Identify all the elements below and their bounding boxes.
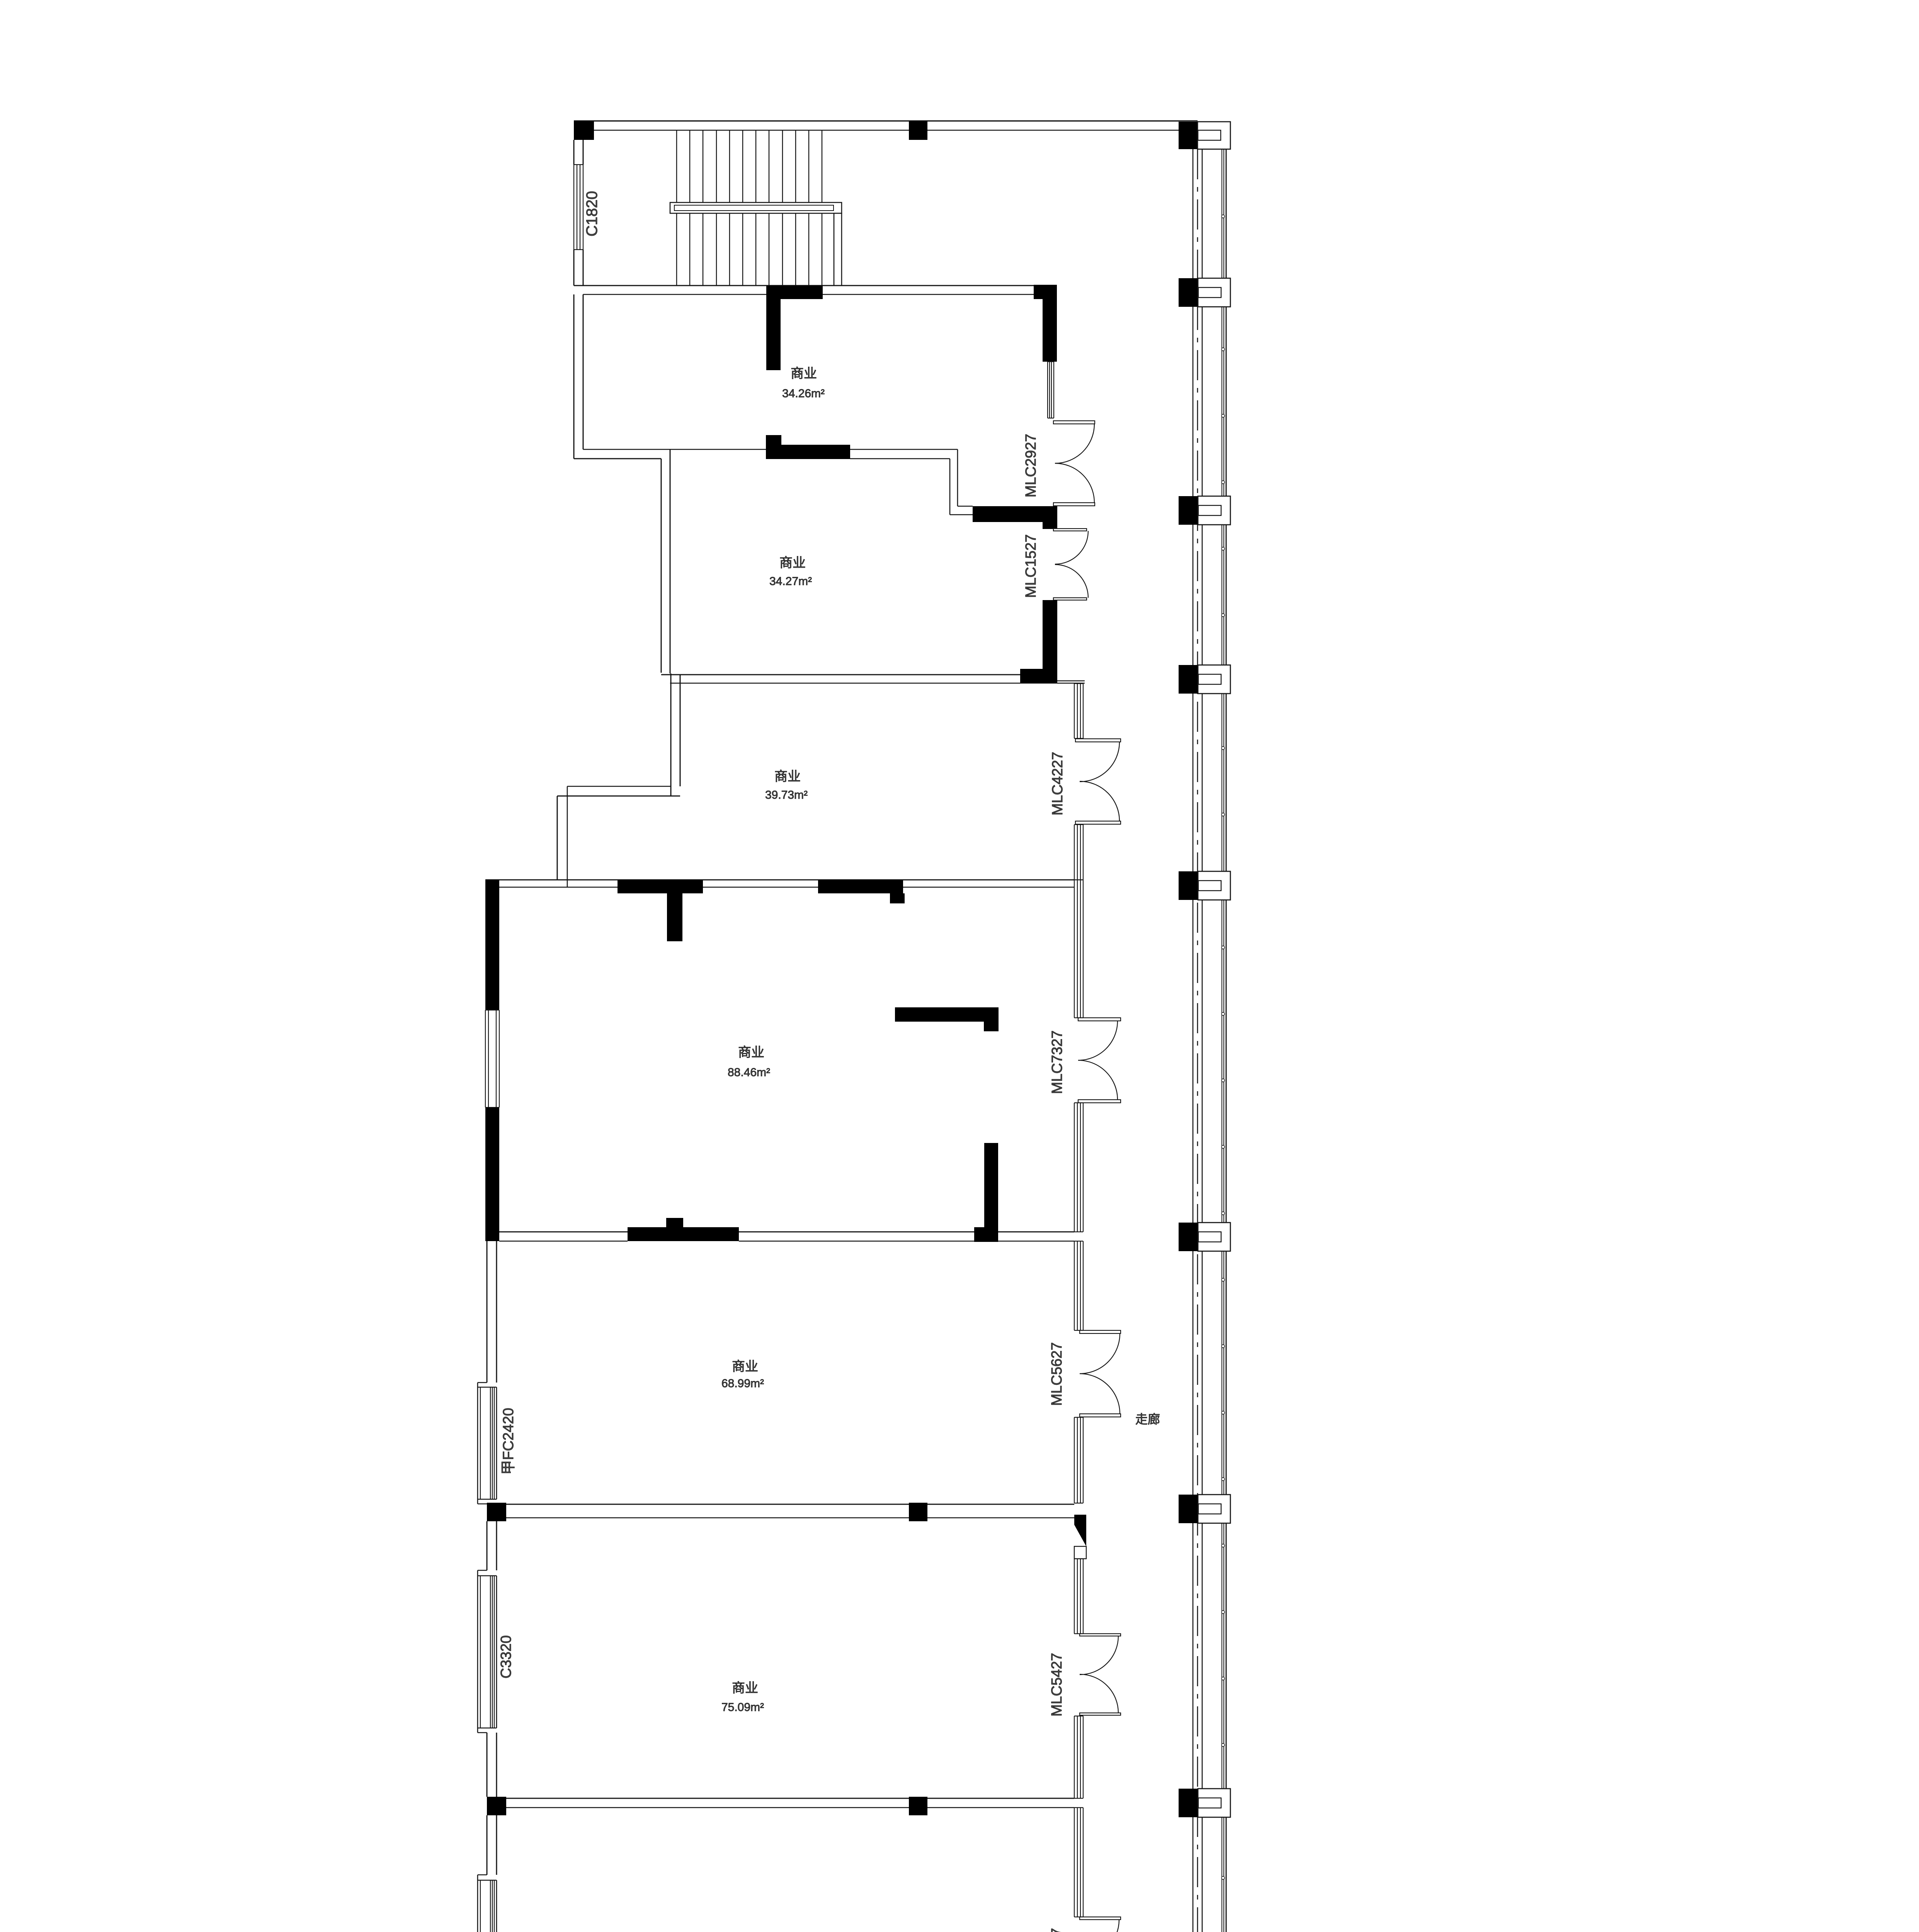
svg-text:商业: 商业 bbox=[779, 556, 806, 570]
svg-text:商业: 商业 bbox=[738, 1045, 764, 1060]
svg-text:75.09m²: 75.09m² bbox=[721, 1701, 764, 1714]
svg-text:34.26m²: 34.26m² bbox=[782, 387, 825, 400]
svg-text:MLC5427: MLC5427 bbox=[1049, 1653, 1065, 1717]
svg-text:MLC5627: MLC5627 bbox=[1049, 1342, 1065, 1406]
svg-text:商业: 商业 bbox=[774, 769, 801, 784]
svg-text:商业: 商业 bbox=[732, 1359, 758, 1374]
svg-text:走廊: 走廊 bbox=[1135, 1412, 1160, 1426]
svg-text:C3320: C3320 bbox=[498, 1635, 514, 1679]
svg-text:39.73m²: 39.73m² bbox=[765, 789, 808, 801]
svg-text:88.46m²: 88.46m² bbox=[728, 1066, 770, 1079]
svg-text:MLC6427: MLC6427 bbox=[1049, 1928, 1065, 1932]
svg-text:商业: 商业 bbox=[791, 366, 817, 381]
svg-text:MLC4227: MLC4227 bbox=[1050, 752, 1066, 816]
svg-text:68.99m²: 68.99m² bbox=[721, 1377, 764, 1390]
svg-text:商业: 商业 bbox=[732, 1681, 758, 1696]
svg-text:34.27m²: 34.27m² bbox=[769, 575, 812, 588]
svg-text:C1820: C1820 bbox=[584, 191, 601, 236]
svg-text:甲FC2420: 甲FC2420 bbox=[500, 1408, 517, 1475]
svg-text:MLC7327: MLC7327 bbox=[1049, 1031, 1065, 1094]
svg-text:MLC2927: MLC2927 bbox=[1023, 434, 1039, 498]
svg-text:MLC1527: MLC1527 bbox=[1023, 534, 1039, 598]
